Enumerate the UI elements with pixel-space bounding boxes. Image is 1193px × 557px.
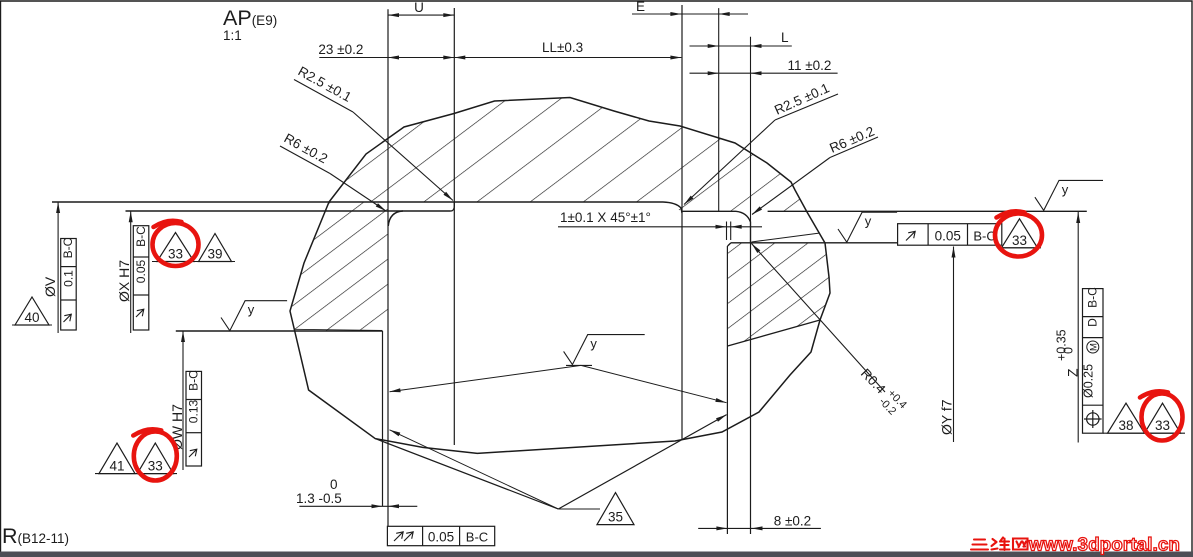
svg-text:33: 33 [1155,418,1170,433]
svg-text:U: U [414,0,424,15]
svg-text:LL±0.3: LL±0.3 [542,40,583,55]
svg-text:39: 39 [207,247,222,262]
svg-text:0.05: 0.05 [935,229,961,244]
svg-text:B-C: B-C [1086,287,1100,308]
svg-text:11 ±0.2: 11 ±0.2 [788,58,832,73]
svg-text:41: 41 [109,459,124,474]
svg-text:33: 33 [1012,233,1027,248]
svg-text:B-C: B-C [187,370,201,391]
svg-text:L: L [781,30,789,45]
svg-text:B-C: B-C [134,226,148,247]
svg-text:1.3 -0.5: 1.3 -0.5 [296,491,342,506]
svg-text:40: 40 [24,310,39,325]
svg-text:33: 33 [148,459,163,474]
svg-text:y: y [865,214,872,229]
svg-text:E: E [636,0,645,14]
svg-text:Z: Z [1065,368,1081,377]
svg-text:23 ±0.2: 23 ±0.2 [318,42,363,57]
svg-text:0.13: 0.13 [187,399,201,423]
svg-text:www.3dportal.cn: www.3dportal.cn [1028,534,1180,555]
svg-text:35: 35 [608,510,623,525]
svg-text:y: y [248,302,255,317]
svg-text:0.05: 0.05 [134,259,148,283]
svg-text:33: 33 [168,247,183,262]
svg-text:D: D [1086,318,1100,327]
svg-text:0.05: 0.05 [428,530,454,545]
svg-text:1:1: 1:1 [223,28,242,43]
svg-text:ØV: ØV [42,276,58,297]
svg-text:+0.35: +0.35 [1055,329,1069,361]
svg-text:B-C: B-C [61,237,75,258]
svg-text:y: y [1062,182,1069,197]
svg-text:1±0.1 X 45°±1°: 1±0.1 X 45°±1° [560,210,651,225]
svg-text:y: y [590,336,597,351]
svg-text:ØX H7: ØX H7 [116,260,132,302]
svg-text:B-C: B-C [973,229,995,244]
svg-text:M: M [1089,343,1100,351]
svg-text:38: 38 [1118,418,1133,433]
svg-text:Ø0.25: Ø0.25 [1082,364,1096,398]
svg-text:8 ±0.2: 8 ±0.2 [774,514,811,529]
svg-text:B-C: B-C [466,530,488,545]
svg-text:0: 0 [330,477,338,492]
svg-text:ØY f7: ØY f7 [939,399,955,435]
svg-text:0.1: 0.1 [62,270,76,287]
